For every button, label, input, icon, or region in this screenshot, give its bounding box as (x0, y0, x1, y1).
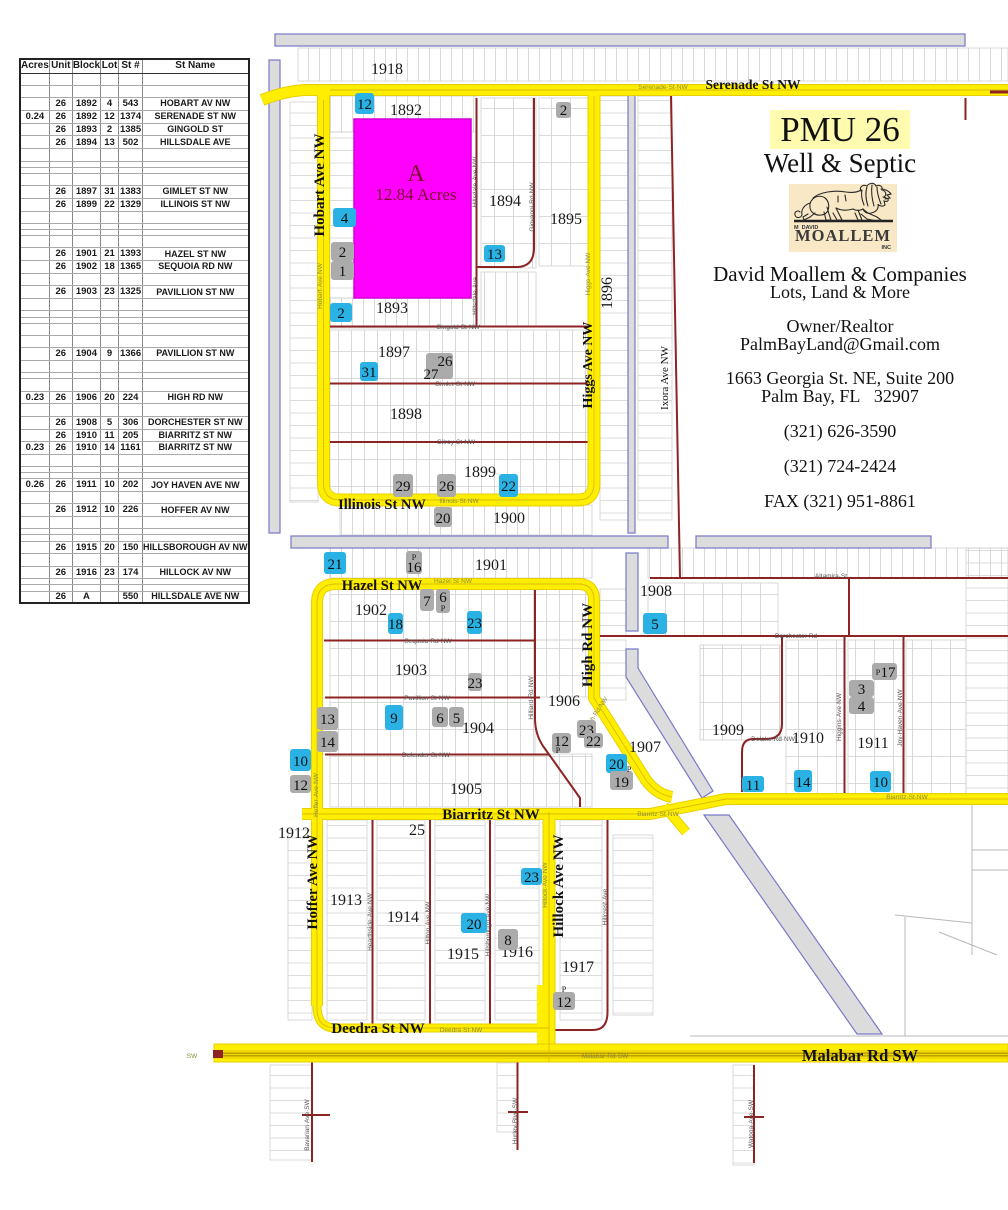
svg-text:Joy·Haven·Ave·NW: Joy·Haven·Ave·NW (897, 688, 904, 746)
svg-text:19: 19 (614, 775, 629, 791)
svg-text:1899: 1899 (464, 464, 496, 481)
svg-text:1897: 1897 (378, 344, 410, 361)
svg-text:25: 25 (409, 822, 425, 839)
svg-text:Hilton·Ave·NW: Hilton·Ave·NW (425, 901, 432, 945)
svg-text:1910: 1910 (792, 730, 824, 747)
svg-text:Giovanni·Rd·NW: Giovanni·Rd·NW (529, 182, 536, 232)
svg-text:1900: 1900 (493, 510, 525, 527)
svg-text:Hillsdale·Ave: Hillsdale·Ave (472, 277, 479, 315)
svg-text:23: 23 (467, 616, 482, 632)
svg-text:14: 14 (320, 735, 336, 751)
svg-text:Defender·St·NW: Defender·St·NW (402, 752, 451, 759)
svg-text:Biarritz·St·NW: Biarritz·St·NW (637, 811, 679, 818)
svg-text:1908: 1908 (640, 583, 672, 600)
svg-text:11: 11 (746, 778, 760, 794)
svg-text:1905: 1905 (450, 781, 482, 798)
svg-text:27: 27 (424, 367, 440, 383)
svg-text:Hoffer Ave NW: Hoffer Ave NW (305, 834, 321, 930)
svg-text:Malabar·Rd·SW: Malabar·Rd·SW (582, 1053, 629, 1060)
svg-text:22: 22 (586, 734, 601, 750)
svg-text:1913: 1913 (330, 892, 362, 909)
svg-text:26: 26 (438, 354, 454, 370)
svg-text:29: 29 (396, 479, 411, 495)
svg-text:1: 1 (339, 264, 347, 280)
svg-text:Serenade·St·NW: Serenade·St·NW (638, 84, 688, 91)
svg-text:Hilliard·Rd·NW: Hilliard·Rd·NW (528, 675, 535, 719)
svg-text:1893: 1893 (376, 300, 408, 317)
svg-text:16: 16 (407, 560, 423, 576)
svg-text:Pavillion·St·NW: Pavillion·St·NW (404, 695, 450, 702)
svg-text:2: 2 (339, 245, 347, 261)
svg-text:18: 18 (388, 617, 403, 633)
svg-text:A: A (407, 161, 425, 187)
svg-text:1895: 1895 (550, 211, 582, 228)
svg-text:Ixora Ave NW: Ixora Ave NW (659, 345, 671, 410)
svg-text:20: 20 (436, 511, 451, 527)
svg-text:1896: 1896 (599, 277, 616, 309)
svg-text:Hobart Ave NW: Hobart Ave NW (312, 133, 328, 236)
svg-text:12.84 Acres: 12.84 Acres (375, 185, 456, 204)
svg-text:21: 21 (328, 557, 343, 573)
svg-text:20: 20 (609, 757, 624, 773)
svg-text:Bavarian·Ave·SW: Bavarian·Ave·SW (304, 1098, 311, 1150)
svg-text:Hazel·St·NW: Hazel·St·NW (434, 578, 473, 585)
svg-text:High Rd NW: High Rd NW (580, 603, 596, 687)
svg-text:1906: 1906 (548, 693, 580, 710)
svg-text:Deedra·St·NW: Deedra·St·NW (440, 1027, 483, 1034)
svg-text:Dorchester·Rd: Dorchester·Rd (775, 633, 818, 640)
svg-text:5: 5 (453, 711, 461, 727)
svg-text:Biarritz St NW: Biarritz St NW (442, 807, 539, 823)
svg-text:8: 8 (504, 933, 512, 949)
svg-text:10: 10 (873, 775, 888, 791)
svg-text:4: 4 (858, 699, 866, 715)
svg-text:Altamira·St: Altamira·St (815, 573, 847, 580)
svg-text:12: 12 (357, 97, 372, 113)
svg-text:Hurley·Blvd·SW: Hurley·Blvd·SW (512, 1097, 519, 1144)
svg-text:1917: 1917 (562, 959, 594, 976)
svg-text:Illinois·St·NW: Illinois·St·NW (439, 498, 479, 505)
svg-text:7: 7 (423, 594, 431, 610)
svg-text:Hobart·Ave·NW: Hobart·Ave·NW (317, 262, 324, 309)
svg-text:P: P (441, 604, 446, 613)
svg-text:SW: SW (187, 1053, 198, 1060)
svg-text:13: 13 (487, 247, 502, 263)
svg-text:P: P (627, 765, 632, 774)
svg-text:Malabar Rd SW: Malabar Rd SW (802, 1046, 919, 1065)
svg-text:Hillock·Ave·NW: Hillock·Ave·NW (542, 861, 549, 907)
svg-text:2: 2 (560, 103, 568, 119)
svg-text:3: 3 (858, 682, 866, 698)
svg-text:1894: 1894 (489, 193, 521, 210)
svg-text:12: 12 (293, 778, 308, 794)
svg-text:Illinois St NW: Illinois St NW (338, 497, 426, 513)
svg-text:14: 14 (796, 775, 812, 791)
svg-text:P: P (556, 746, 561, 755)
svg-text:Higgs Ave NW: Higgs Ave NW (581, 322, 596, 409)
svg-text:Hillcrest·Ave: Hillcrest·Ave (602, 888, 609, 925)
svg-text:22: 22 (501, 479, 516, 495)
svg-text:1904: 1904 (462, 720, 494, 737)
svg-text:Hillock Ave NW: Hillock Ave NW (551, 834, 567, 937)
svg-text:P: P (562, 985, 567, 994)
svg-text:23: 23 (468, 676, 483, 692)
svg-text:Gimlet·St·NW: Gimlet·St·NW (435, 381, 476, 388)
svg-text:23: 23 (524, 870, 539, 886)
svg-text:1898: 1898 (390, 406, 422, 423)
svg-text:1918: 1918 (371, 61, 403, 78)
svg-text:1902: 1902 (355, 602, 387, 619)
svg-text:9: 9 (390, 711, 398, 727)
svg-text:Serenade St NW: Serenade St NW (705, 77, 801, 92)
svg-text:1915: 1915 (447, 946, 479, 963)
svg-text:4: 4 (341, 211, 349, 227)
svg-text:Biarritz·St·NW: Biarritz·St·NW (886, 794, 928, 801)
svg-text:31: 31 (362, 365, 377, 381)
svg-text:Sequoia·Rd·NW: Sequoia·Rd·NW (404, 638, 452, 645)
svg-text:Watoga·Ave·SW: Watoga·Ave·SW (748, 1099, 755, 1148)
svg-text:1892: 1892 (390, 102, 422, 119)
svg-text:Hoffer·Ave·NW: Hoffer·Ave·NW (313, 772, 320, 817)
svg-text:Gilroy·St·NW: Gilroy·St·NW (437, 439, 476, 446)
svg-text:1909: 1909 (712, 722, 744, 739)
svg-text:Higgs·Ave·NW: Higgs·Ave·NW (585, 252, 592, 296)
svg-text:MOALLEM: MOALLEM (795, 226, 891, 245)
svg-text:Delake·Rd·NW: Delake·Rd·NW (751, 736, 796, 743)
svg-text:1911: 1911 (857, 735, 888, 752)
svg-text:20: 20 (467, 917, 482, 933)
svg-text:17: 17 (881, 665, 897, 681)
svg-text:2: 2 (337, 306, 345, 322)
svg-text:13: 13 (320, 712, 335, 728)
svg-text:Deedra St NW: Deedra St NW (331, 1021, 424, 1037)
svg-text:10: 10 (293, 754, 308, 770)
svg-text:Hearthside·Ave·NW: Hearthside·Ave·NW (367, 892, 374, 951)
svg-text:Hazel St NW: Hazel St NW (342, 578, 423, 594)
svg-text:1907: 1907 (629, 739, 661, 756)
svg-text:Gingold·St·NW: Gingold·St·NW (436, 324, 481, 331)
svg-text:12: 12 (557, 995, 572, 1011)
svg-text:1914: 1914 (387, 909, 419, 926)
svg-text:5: 5 (651, 617, 659, 633)
svg-text:1903: 1903 (395, 662, 427, 679)
svg-text:26: 26 (439, 479, 455, 495)
svg-text:1901: 1901 (475, 557, 507, 574)
svg-text:Higgins·Ave·NW: Higgins·Ave·NW (836, 692, 843, 741)
svg-text:INC: INC (882, 245, 892, 251)
svg-text:Hillsdale·Ave·NW: Hillsdale·Ave·NW (472, 156, 479, 208)
svg-text:6: 6 (436, 711, 444, 727)
